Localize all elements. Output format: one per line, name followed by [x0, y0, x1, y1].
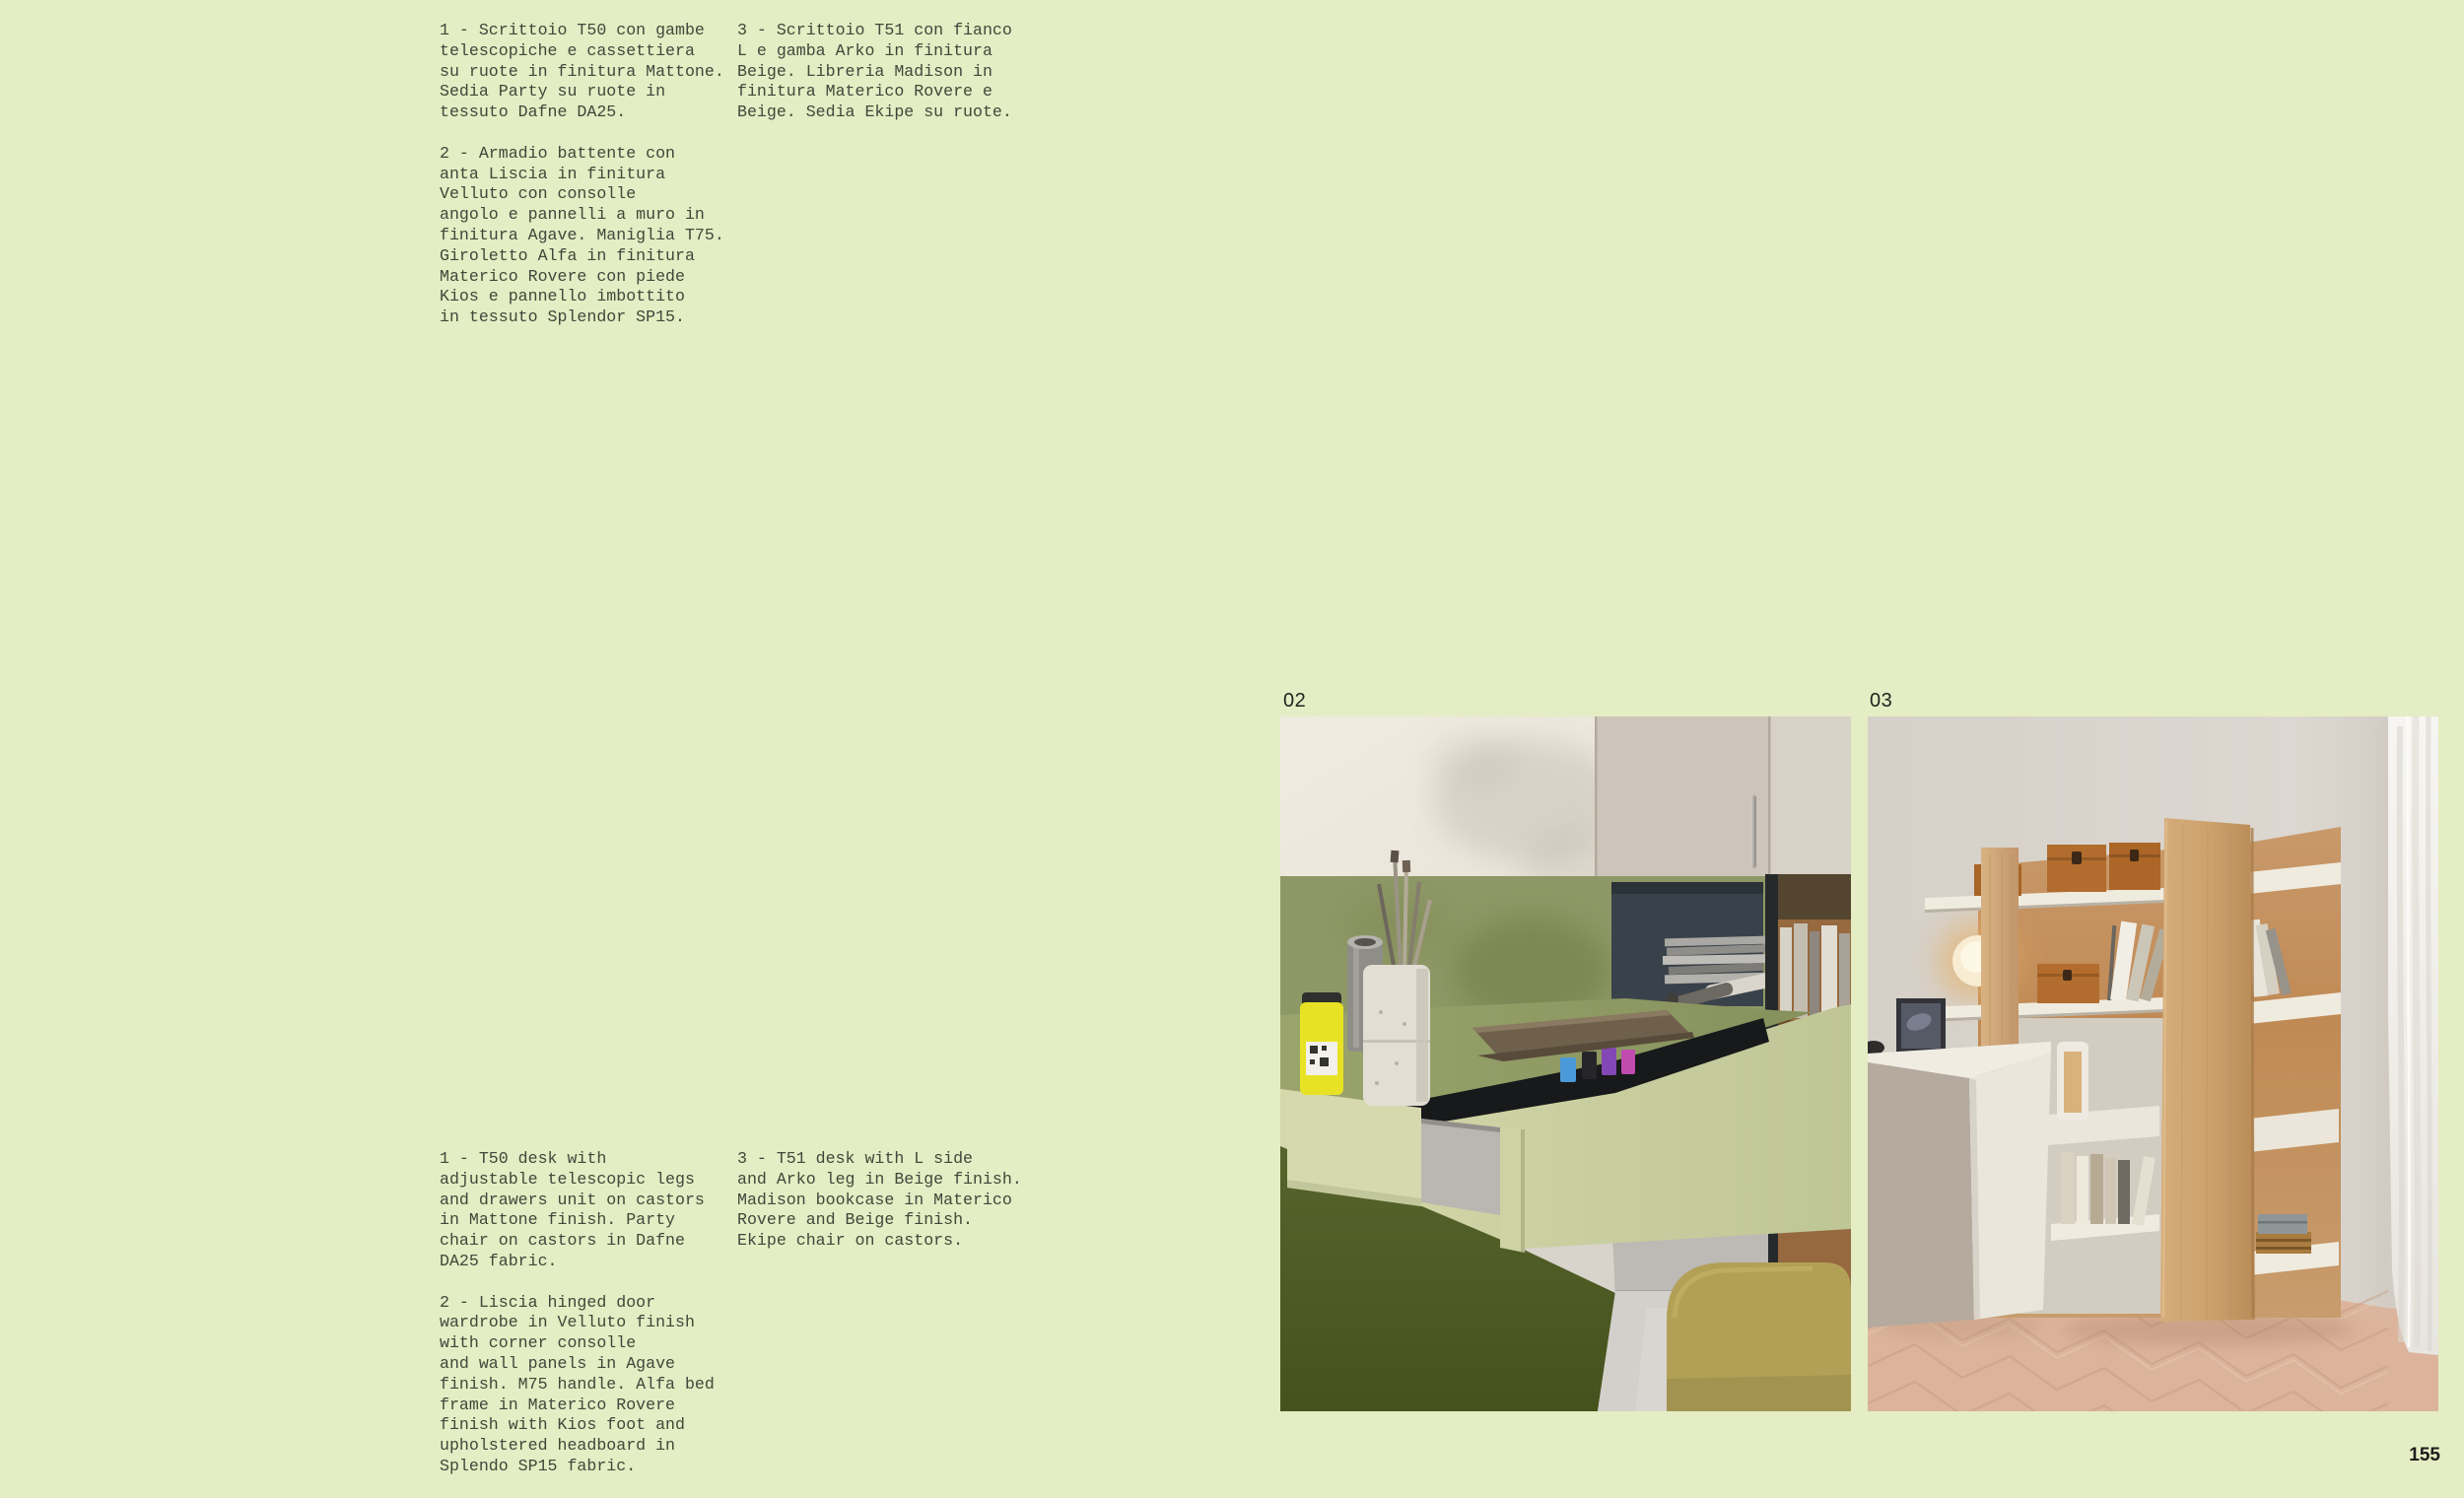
- oak-upright-left: [1981, 848, 2019, 1066]
- desk-side-shadow: [1868, 1062, 1974, 1328]
- glass-cylinder-lamp: [2057, 1042, 2088, 1121]
- caption-italian-col-2: 3 - Scrittoio T51 con fianco L e gamba A…: [737, 21, 1055, 144]
- curtain: [2376, 716, 2438, 1355]
- caption-en-item-2: 2 - Liscia hinged door wardrobe in Vellu…: [440, 1293, 757, 1477]
- caption-it-item-3: 3 - Scrittoio T51 con fianco L e gamba A…: [737, 21, 1055, 123]
- page-number: 155: [2409, 1446, 2440, 1464]
- desk-scene-illustration: [1280, 716, 1851, 1411]
- figure-03-photo: [1868, 716, 2438, 1411]
- wall-cabinet-doors: [1595, 716, 1851, 887]
- books-row: [1780, 923, 1850, 1018]
- caption-english-col-1: 1 - T50 desk with adjustable telescopic …: [440, 1149, 757, 1498]
- olive-pouf: [1667, 1262, 1851, 1411]
- figure-03-label: 03: [1870, 691, 1892, 711]
- yellow-jar: [1300, 992, 1343, 1095]
- caption-english-col-2: 3 - T51 desk with L side and Arko leg in…: [737, 1149, 1055, 1272]
- figure-02-photo: [1280, 716, 1851, 1411]
- ceramic-brush-cup: [1363, 965, 1430, 1106]
- figure-02-label: 02: [1283, 691, 1306, 711]
- open-shelf-niche: [1611, 882, 1778, 1012]
- cabinet-handle: [1750, 795, 1756, 868]
- desk-front-panel: [1969, 1053, 2051, 1320]
- caption-italian-col-1: 1 - Scrittoio T50 con gambe telescopiche…: [440, 21, 757, 349]
- caption-en-item-1: 1 - T50 desk with adjustable telescopic …: [440, 1149, 757, 1272]
- caption-en-item-3: 3 - T51 desk with L side and Arko leg in…: [737, 1149, 1055, 1252]
- drawer-side: [1421, 1119, 1500, 1215]
- bookcase-scene-illustration: [1868, 716, 2438, 1411]
- caption-it-item-1: 1 - Scrittoio T50 con gambe telescopiche…: [440, 21, 757, 123]
- caption-it-item-2: 2 - Armadio battente con anta Liscia in …: [440, 144, 757, 328]
- box-stack-right: [2256, 1214, 2311, 1254]
